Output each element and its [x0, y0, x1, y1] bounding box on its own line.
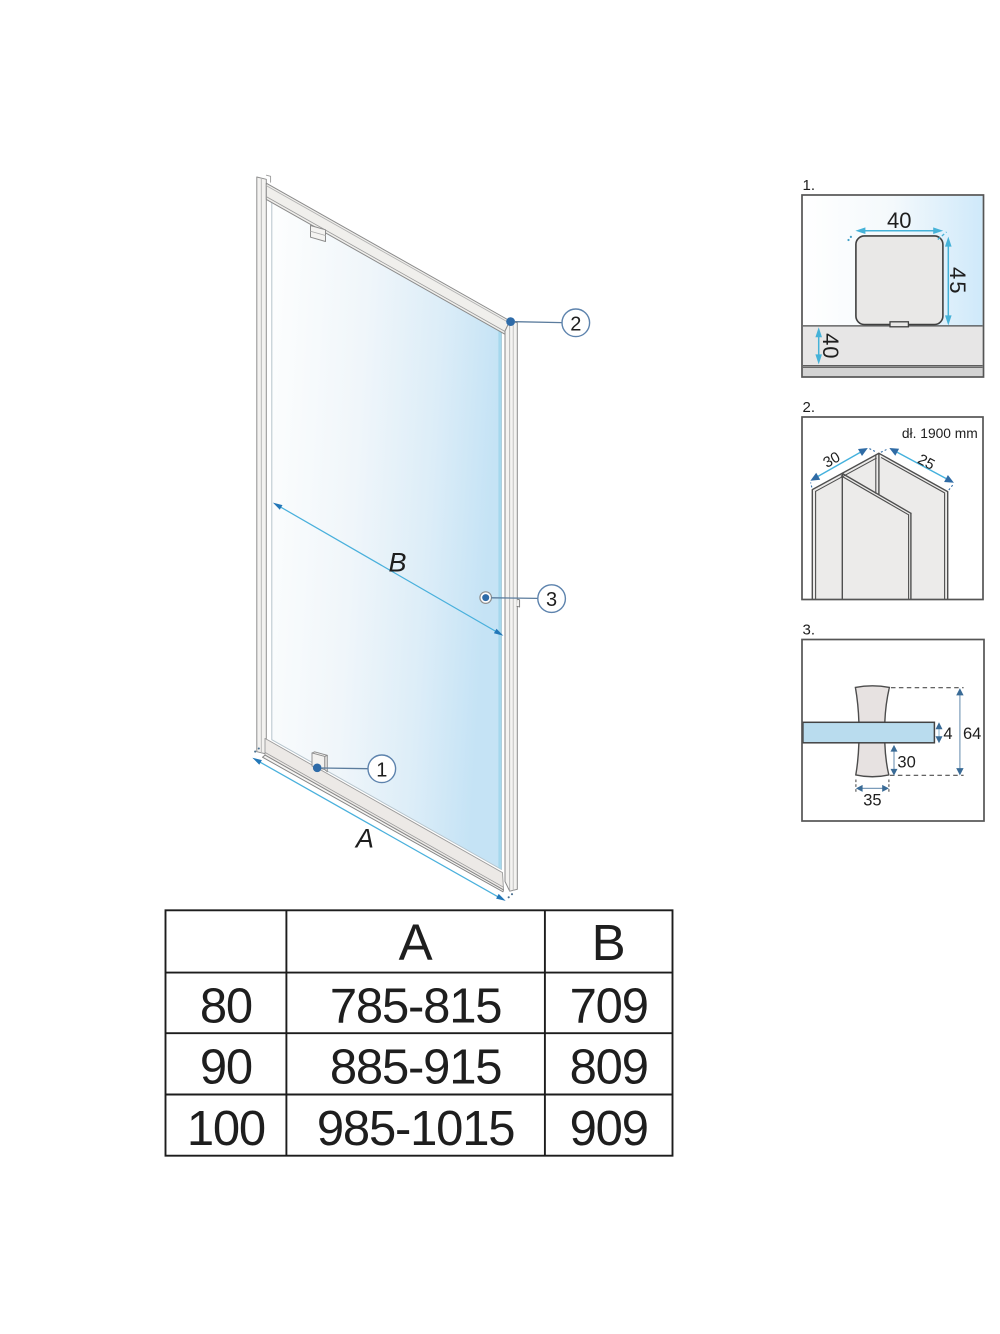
- svg-text:B: B: [592, 914, 626, 971]
- svg-text:785-815: 785-815: [330, 979, 501, 1033]
- svg-text:985-1015: 985-1015: [317, 1102, 514, 1156]
- svg-text:885-915: 885-915: [330, 1040, 501, 1094]
- svg-text:2: 2: [570, 313, 581, 335]
- svg-text:4: 4: [943, 725, 952, 743]
- svg-text:30: 30: [897, 753, 915, 771]
- svg-text:2.: 2.: [803, 399, 816, 416]
- svg-text:909: 909: [570, 1102, 648, 1156]
- svg-text:1.: 1.: [803, 177, 816, 194]
- svg-text:709: 709: [570, 979, 648, 1033]
- svg-text:45: 45: [945, 267, 970, 295]
- svg-text:A: A: [399, 914, 433, 971]
- svg-text:40: 40: [818, 333, 843, 359]
- svg-text:25: 25: [915, 451, 938, 474]
- svg-text:3: 3: [546, 589, 557, 611]
- svg-text:30: 30: [820, 449, 843, 472]
- svg-text:A: A: [354, 824, 374, 854]
- svg-text:80: 80: [200, 979, 252, 1033]
- svg-text:90: 90: [200, 1040, 252, 1094]
- svg-text:1: 1: [376, 759, 387, 781]
- svg-text:dł. 1900 mm: dł. 1900 mm: [902, 426, 978, 441]
- svg-text:40: 40: [887, 208, 911, 233]
- svg-text:64: 64: [963, 725, 981, 743]
- svg-text:100: 100: [187, 1102, 265, 1156]
- svg-text:809: 809: [570, 1040, 648, 1094]
- svg-text:3.: 3.: [803, 622, 816, 639]
- svg-text:35: 35: [863, 791, 881, 809]
- svg-text:B: B: [388, 548, 406, 578]
